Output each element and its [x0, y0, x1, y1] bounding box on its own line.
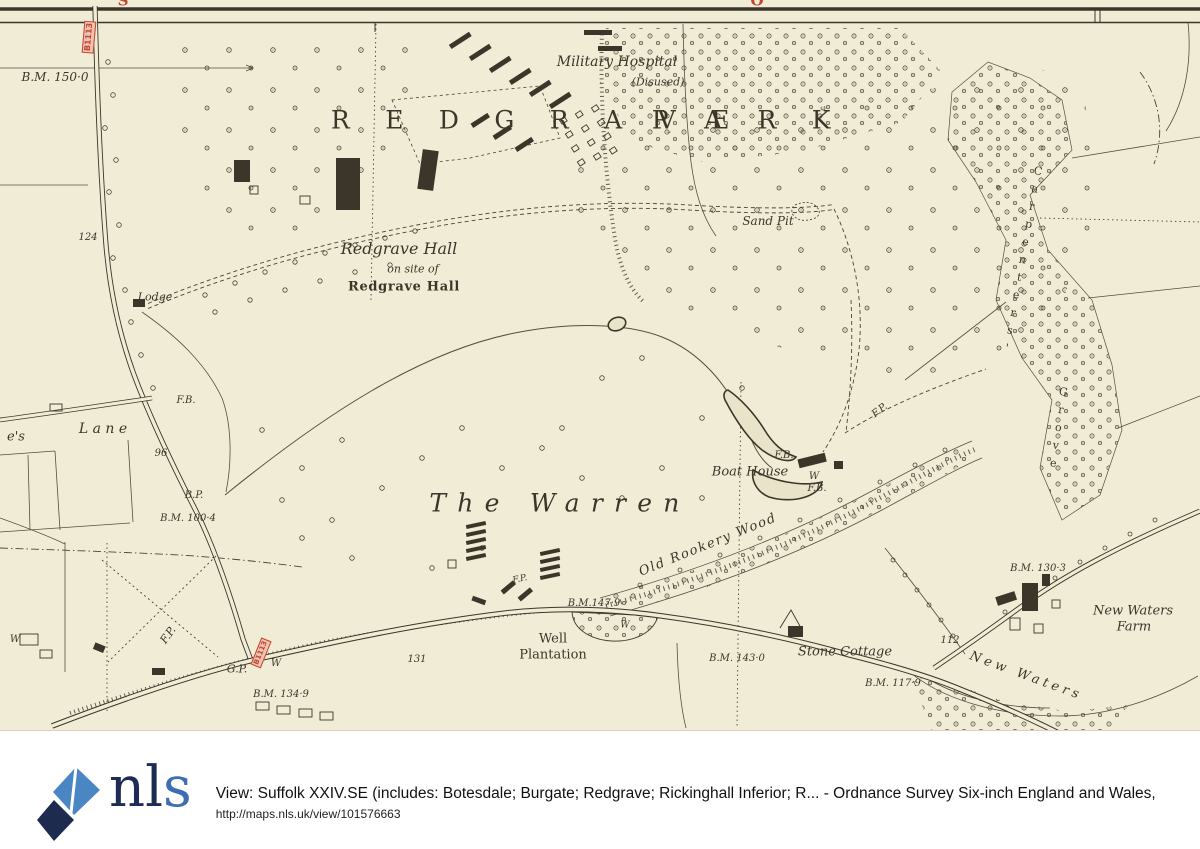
map-label: L a n e	[79, 422, 127, 436]
map-label: Lodge	[138, 292, 173, 303]
map-label: S	[118, 0, 129, 9]
map-label: B.M. 117·9	[865, 679, 921, 689]
map-label: B1113	[82, 20, 97, 53]
map-label: F.B.	[774, 451, 793, 461]
map-label: B1113	[251, 638, 272, 669]
map-label: Old Rookery Wood	[637, 511, 779, 578]
map-label: Stone Cottage	[798, 646, 892, 659]
map-title: View: Suffolk XXIV.SE (includes: Botesda…	[216, 785, 1156, 803]
map-label: New Waters	[968, 650, 1084, 703]
map-label: B.M. 134·9	[253, 690, 309, 700]
map-label: Redgrave Hall	[348, 281, 460, 294]
map-label: 112	[940, 636, 959, 646]
map-label: B.M. 100·4	[160, 514, 216, 524]
map-label: on site of	[387, 264, 439, 275]
map-label: Carpenters'	[999, 164, 1044, 360]
map-label: F.B.	[807, 484, 826, 494]
map-label: Military Hospital	[557, 55, 678, 69]
nls-logo-mark	[36, 763, 108, 845]
map-label: Sand Pit	[742, 215, 793, 227]
map-label: B.M.147·9	[568, 599, 621, 609]
map-label: F.P.	[870, 402, 889, 420]
map-label: W	[809, 472, 819, 482]
map-label: 124	[78, 233, 97, 243]
map-url[interactable]: http://maps.nls.uk/view/101576663	[216, 807, 1156, 821]
map-label: W	[10, 635, 20, 645]
map-label: Plantation	[519, 649, 587, 662]
map-label: New Waters	[1093, 605, 1173, 618]
map-label: (Disused)	[632, 77, 685, 88]
map-label: F.P.	[158, 624, 177, 645]
map-label: B.M. 143·0	[709, 654, 765, 664]
map-label: W	[620, 622, 629, 631]
map-label: Redgrave Hall	[341, 241, 458, 257]
map-label: 96	[155, 449, 168, 459]
map-label: P A R K	[652, 108, 844, 133]
map-label: Grove	[1046, 385, 1069, 475]
map-label: Farm	[1117, 621, 1151, 634]
map-caption: View: Suffolk XXIV.SE (includes: Botesda…	[216, 785, 1156, 821]
map-label: The Warren	[429, 491, 690, 516]
map-label: G.P.	[227, 664, 248, 675]
nls-logo-text: nls	[109, 763, 192, 813]
map-label: B.M. 150·0	[22, 71, 89, 83]
map-label: e's	[7, 431, 25, 444]
nls-logo[interactable]: nls	[36, 763, 192, 845]
map-labels: B.M. 150·0B1113SOMilitary Hospital(Disus…	[0, 0, 1200, 730]
map-label: Well	[539, 633, 567, 646]
footer: nls View: Suffolk XXIV.SE (includes: Bot…	[0, 731, 1200, 849]
map-label: O	[750, 0, 763, 9]
map-label: F.P.	[512, 574, 528, 586]
map-label: F.B.	[176, 396, 195, 406]
map-label: B.P.	[185, 491, 203, 501]
map-label: B.M. 130·3	[1010, 564, 1066, 574]
map-label: 131	[407, 655, 426, 665]
map-view[interactable]: B.M. 150·0B1113SOMilitary Hospital(Disus…	[0, 0, 1200, 731]
map-label: Boat House	[712, 466, 788, 479]
map-label: W	[271, 659, 281, 669]
